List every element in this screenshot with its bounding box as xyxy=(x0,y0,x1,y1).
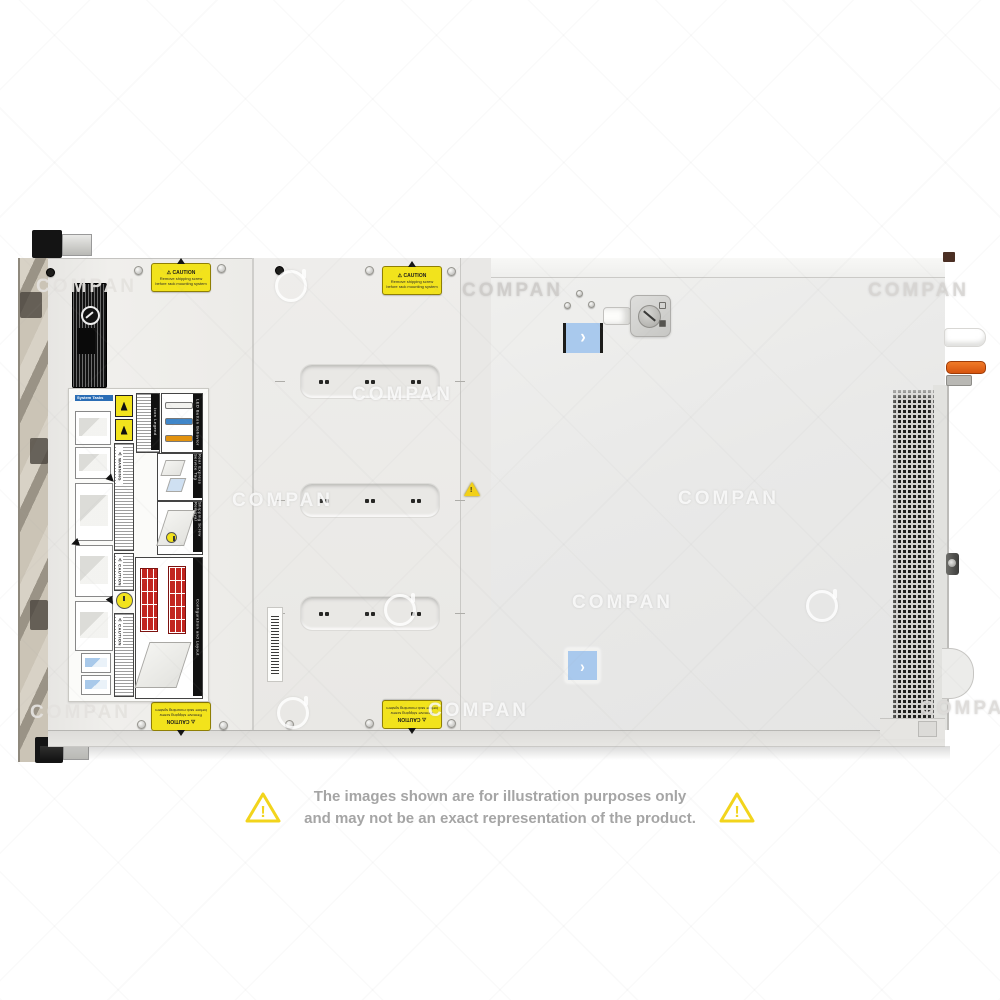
disclaimer-row: ! The images shown are for illustration … xyxy=(0,786,1000,830)
rear-express-tag-panel: Rear Express Service Tag xyxy=(157,453,203,501)
barcode-label xyxy=(267,607,283,682)
screw xyxy=(365,266,374,275)
system-tasks-header: System Tasks xyxy=(75,395,113,401)
watermark-logo xyxy=(275,270,307,302)
watermark-text: COMPAN xyxy=(428,700,529,722)
caution-sticker: ⚠ CAUTION Remove shipping screw before r… xyxy=(151,263,211,292)
led-behavior-header: LED Button Behavior xyxy=(193,394,202,450)
service-illustration xyxy=(75,483,113,541)
lock-cylinder-icon xyxy=(638,305,661,328)
rear-express-header: Rear Express Service Tag xyxy=(193,454,202,498)
disclaimer-line-2: and may not be an exact representation o… xyxy=(304,808,696,830)
caution-strip: ⚠ CAUTION xyxy=(114,613,134,697)
front-bezel-edge xyxy=(18,258,51,762)
rivet xyxy=(564,302,571,309)
watermark-text: COMPAN xyxy=(678,488,779,510)
service-illustration xyxy=(75,545,113,597)
chevron-right-icon: › xyxy=(580,656,585,675)
watermark-logo xyxy=(806,590,838,622)
rack-latch-top-release xyxy=(62,234,92,256)
led-blue xyxy=(165,418,193,425)
rear-bottom-tab xyxy=(918,721,937,737)
screw xyxy=(217,264,226,273)
caution-text: ⚠ CAUTION xyxy=(116,556,123,586)
watermark-logo xyxy=(384,594,416,626)
caution-sticker: ⚠ CAUTION Remove shipping screw before r… xyxy=(382,266,442,295)
disclaimer-text: The images shown are for illustration pu… xyxy=(304,786,696,830)
caution-text: ⚠ CAUTION xyxy=(116,616,123,646)
watermark-text: COMPAN xyxy=(920,698,1000,720)
rivet xyxy=(576,290,583,297)
regulatory-logo-icon xyxy=(81,306,100,325)
led-orange xyxy=(165,435,193,442)
product-info-label xyxy=(72,283,107,388)
caution-strip: ⚠ CAUTION xyxy=(114,553,134,591)
rear-handle-white xyxy=(944,328,986,347)
cover-latch-button: › xyxy=(563,323,603,353)
disclaimer-line-1: The images shown are for illustration pu… xyxy=(304,786,696,808)
watermark-text: COMPAN xyxy=(462,280,563,302)
tag-illustration xyxy=(166,478,187,492)
config-layout-panel: Configuration and Layout xyxy=(135,557,203,699)
cover-top-lip xyxy=(491,258,945,278)
watermark-text: COMPAN xyxy=(30,702,131,724)
pinch-warning-icon xyxy=(115,395,133,417)
screw-callout-icon xyxy=(166,532,177,543)
bezel-shadow-notch xyxy=(30,438,48,464)
rivet xyxy=(588,301,595,308)
watermark-logo xyxy=(277,697,309,729)
led-white xyxy=(165,402,193,409)
unlocked-icon xyxy=(659,302,666,309)
warning-text: ⚠ WARNING xyxy=(116,446,123,486)
caution-line: before rack mounting system xyxy=(386,284,437,289)
rack-latch-top xyxy=(32,230,62,258)
five-minute-timer-icon xyxy=(116,592,133,609)
warning-strip: ⚠ WARNING xyxy=(114,443,134,551)
caution-sticker: ⚠ CAUTION Remove shipping screw before r… xyxy=(151,702,211,731)
watermark-text: COMPAN xyxy=(232,490,333,512)
watermark-text: COMPAN xyxy=(352,384,453,406)
tag-illustration xyxy=(160,460,185,476)
caution-title: ⚠ CAUTION xyxy=(398,717,427,723)
screw xyxy=(219,721,228,730)
warning-triangle-icon: ! xyxy=(244,791,282,825)
label-blackout xyxy=(77,328,95,354)
service-illustration xyxy=(75,411,111,445)
service-label-sheet: System Tasks ⚠ WARNING ⚠ CAUTION ⚠ CAUTI… xyxy=(68,388,209,702)
caution-title: ⚠ CAUTION xyxy=(167,719,196,725)
server-iso-drawing xyxy=(135,642,192,688)
cover-release-slider xyxy=(603,307,631,325)
watermark-text: COMPAN xyxy=(572,592,673,614)
service-illustration-blue xyxy=(81,675,111,695)
chevron-right-icon: › xyxy=(580,327,585,349)
screw xyxy=(365,719,374,728)
cover-recess-handle xyxy=(300,596,440,631)
watermark-text: COMPAN xyxy=(36,276,137,298)
psu-handle-bulge xyxy=(942,648,974,699)
caution-line: Remove shipping screw xyxy=(160,714,202,719)
caution-line: before rack mounting system xyxy=(155,709,206,714)
drive-bay-grid xyxy=(140,568,158,632)
service-illustration xyxy=(75,601,113,651)
svg-text:!: ! xyxy=(260,804,265,821)
svg-text:!: ! xyxy=(734,804,739,821)
pinch-warning-icon xyxy=(115,419,133,441)
screw xyxy=(134,266,143,275)
warning-triangle-icon: ! xyxy=(718,791,756,825)
caution-line: Remove shipping screw xyxy=(391,712,433,717)
led-behavior-panel: LED Button Behavior xyxy=(161,393,203,453)
config-layout-header: Configuration and Layout xyxy=(193,558,202,696)
watermark-text: COMPAN xyxy=(868,280,969,302)
screw xyxy=(447,267,456,276)
keylock xyxy=(630,295,671,337)
drive-bay-grid xyxy=(168,566,186,634)
rear-bracket xyxy=(946,375,972,386)
service-illustration-blue xyxy=(81,653,111,673)
thumbscrew xyxy=(946,553,959,575)
chassis-shadow xyxy=(40,746,950,760)
rear-handle-orange xyxy=(946,361,986,374)
bezel-shadow-notch xyxy=(30,600,48,630)
locked-icon xyxy=(659,320,666,327)
icon-legend-header: Icon Legend xyxy=(151,394,159,450)
caution-line: before rack mounting system xyxy=(155,281,206,286)
psu-vent-grid xyxy=(893,390,934,718)
service-illustration xyxy=(75,447,111,479)
icon-legend-panel: Icon Legend xyxy=(136,393,160,453)
screw xyxy=(137,720,146,729)
product-photo-server-top-view: { "watermark": { "text": "COMPAN" }, "di… xyxy=(0,0,1000,1000)
cover-latch-button: › xyxy=(565,648,600,683)
rear-tab xyxy=(943,252,955,262)
shipping-screw-panel: Shipping Screw Removal xyxy=(157,501,203,555)
